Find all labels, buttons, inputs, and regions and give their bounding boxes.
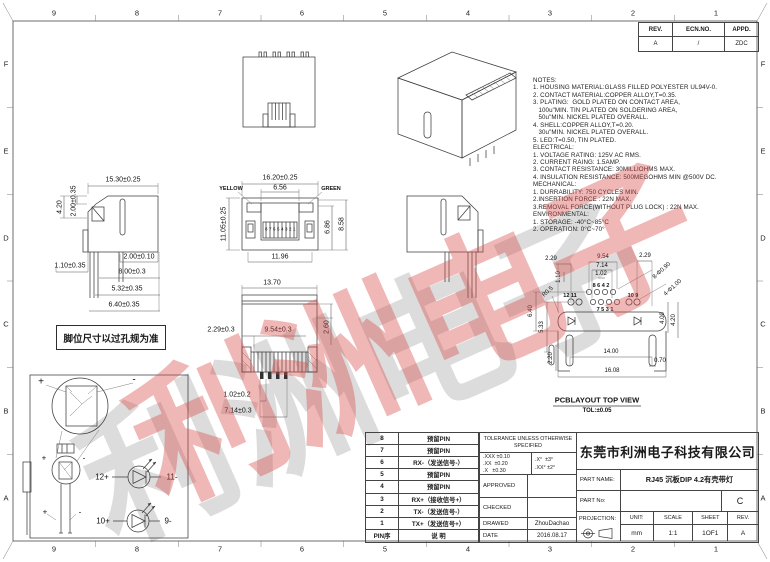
part-no-value (621, 491, 721, 511)
pin-number: 7 (366, 445, 399, 457)
view-isometric (398, 52, 516, 166)
pcb-layout-tolerance: TOL:±0.05 (583, 408, 612, 414)
zone-column-label: 5 (383, 9, 387, 18)
tolerance-block: TOLERANCE UNLESS OTHERWISE SPECIFIED .XX… (479, 433, 576, 542)
zone-row-label: C (3, 320, 8, 329)
dim-label: 4.00 (660, 312, 666, 324)
ecn-value: / (673, 37, 725, 51)
dim-label: 8.58 (339, 217, 346, 231)
rev-value: A (728, 525, 758, 541)
rev-label: REV. (728, 512, 758, 525)
zone-row-label: C (760, 320, 765, 329)
dim-label: 2.20 (548, 352, 554, 364)
dim-label: 2.00±0.35 (71, 185, 78, 216)
zone-column-label: 3 (548, 9, 552, 18)
zone-column-label: 9 (52, 9, 56, 18)
zone-row-label: D (760, 234, 765, 243)
zone-row-label: F (761, 60, 766, 69)
part-name-label: PART NAME: (577, 470, 621, 490)
dim-label: 5.33 (539, 321, 545, 333)
company-name: 东莞市利洲电子科技有限公司 (577, 433, 758, 470)
dim-label: 6.56 (273, 185, 287, 192)
dim-label: 8.00±0.3 (118, 269, 145, 276)
zone-column-label: 9 (52, 545, 56, 554)
zone-column-label: 3 (548, 545, 552, 554)
zone-row-label: E (760, 147, 765, 156)
pin-description-table: 8 预留PIN 7 预留PIN 6 RX-（发送信号-） 5 预留PIN 4 预… (366, 433, 479, 542)
view-top (243, 52, 315, 127)
led-pin-label: 11- (167, 473, 178, 482)
dim-label: 15.30±0.25 (106, 177, 141, 184)
dim-label: 6.40±0.35 (108, 302, 139, 309)
tolerance-title: TOLERANCE UNLESS OTHERWISE SPECIFIED (480, 433, 576, 453)
unit-label: UNIT: (621, 512, 653, 525)
zone-column-label: 8 (135, 545, 139, 554)
dim-label: 9.54 (597, 254, 609, 260)
date-value: 2016.08.17 (528, 530, 576, 542)
title-block-right: 东莞市利洲电子科技有限公司 PART NAME: RJ45 沉板DIP 4.2有… (576, 433, 758, 542)
drawed-label: DRAWED (480, 518, 528, 529)
pin-desc: TX-（发送信号-） (399, 506, 479, 518)
tolerance-angular: .X° ±3° .XX° ±2° (532, 453, 576, 474)
polarity-mark: - (79, 508, 82, 517)
sheet-value: 1OF1 (693, 525, 727, 541)
part-name-value: RJ45 沉板DIP 4.2有壳带灯 (621, 470, 758, 490)
led-pin-label: 12+ (95, 473, 109, 482)
date-label: DATE (480, 530, 528, 542)
dim-label: 11.05±0.25 (221, 207, 228, 241)
unit-value: mm (621, 525, 653, 541)
pcb-pin-numbers: 10 9 (628, 293, 639, 299)
dim-label: 4.20 (57, 200, 64, 214)
projection-icon (577, 525, 620, 541)
dim-label: 13.70 (263, 280, 281, 287)
pin-number: 3 (366, 494, 399, 506)
pin-number: 2 (366, 506, 399, 518)
pin-desc: 预留PIN (399, 433, 479, 445)
zone-column-label: 2 (631, 545, 635, 554)
zone-column-label: 1 (714, 545, 718, 554)
zone-column-label: 6 (300, 9, 304, 18)
polarity-mark: - (132, 375, 135, 386)
pin-desc: 预留PIN (399, 445, 479, 457)
led-pin-label: 10+ (96, 517, 110, 526)
zone-row-label: E (3, 147, 8, 156)
dim-label: 6.40 (528, 305, 534, 317)
dim-label: 16.08 (604, 368, 619, 374)
zone-column-label: 7 (218, 545, 222, 554)
dim-label: 5.32±0.35 (111, 286, 142, 293)
dim-label: 9.54±0.3 (264, 327, 291, 334)
scale-value: 1:1 (654, 525, 693, 541)
pin-number: 8 (366, 433, 399, 445)
pin-number: 6 (366, 457, 399, 469)
pin-number: 1 (366, 518, 399, 530)
tolerance-linear: .XXX ±0.10 .XX ±0.20 .X ±0.30 (480, 453, 532, 474)
zone-column-label: 4 (466, 9, 470, 18)
rev-header: REV. (639, 23, 673, 37)
dim-label: 7.14 (596, 263, 608, 269)
zone-row-label: A (760, 494, 765, 503)
dim-label: 2.60 (324, 320, 331, 334)
zone-column-label: 5 (383, 545, 387, 554)
polarity-mark: + (42, 454, 47, 463)
zone-column-label: 2 (631, 9, 635, 18)
approved-label: APPROVED (480, 475, 528, 497)
pin-number: 5 (366, 469, 399, 481)
dim-label: 4.20 (671, 314, 677, 326)
pin-desc: RX-（发送信号-） (399, 457, 479, 469)
dim-label: 1.10 (556, 271, 562, 283)
dim-label: 2.29 (545, 256, 557, 262)
revision-table: REV. ECN.NO. APPD. A / ZDC (638, 22, 759, 52)
pin-gauge-note: 脚位尺寸以过孔规为准 (56, 325, 166, 350)
pcb-pin-numbers: 8 6 4 2 (593, 283, 610, 289)
pin-numbers: 87654321 (265, 227, 297, 232)
desc-header: 说 明 (399, 530, 479, 542)
pcb-layout-title: PCBLAYOUT TOP VIEW (555, 396, 639, 405)
polarity-mark: - (83, 454, 86, 463)
zone-column-label: 8 (135, 9, 139, 18)
dim-label: 1.02±0.2 (223, 392, 250, 399)
dim-label: 16.20±0.25 (263, 175, 298, 182)
polarity-mark: + (38, 377, 44, 388)
dim-label: 11.96 (272, 254, 289, 261)
pin-desc: 预留PIN (399, 481, 479, 493)
notes-text: NOTES: 1. HOUSING MATERIAL:GLASS FILLED … (533, 77, 717, 234)
zone-row-label: A (3, 494, 8, 503)
zone-row-label: B (3, 407, 8, 416)
dim-label: 6.86 (325, 220, 332, 234)
polarity-mark: + (43, 508, 48, 517)
led-detail-box (23, 375, 188, 538)
led-color-label-yellow: YELLOW (219, 186, 243, 192)
zone-row-label: B (760, 407, 765, 416)
dim-label: 2.29 (639, 253, 651, 259)
scale-label: SCALE (654, 512, 693, 525)
pin-number: 4 (366, 481, 399, 493)
pin-desc: TX+（发送信号+） (399, 518, 479, 530)
dim-label: 14.00 (603, 349, 618, 355)
view-bottom (242, 285, 333, 417)
part-no-label: PART No: (577, 491, 621, 511)
zone-column-label: 1 (714, 9, 718, 18)
led-color-label-green: GREEN (321, 186, 341, 192)
part-rev-letter: C (721, 491, 758, 511)
pin-header: PIN序 (366, 530, 399, 542)
zone-row-label: F (4, 60, 9, 69)
zone-column-label: 7 (218, 9, 222, 18)
dim-label: 1.10±0.35 (54, 263, 85, 270)
approved-value (528, 475, 576, 497)
drawing-sheet: 利洲电子 (0, 0, 770, 562)
pcb-pin-numbers: 12 11 (563, 293, 576, 299)
view-side-right (407, 196, 483, 298)
projection-label: PROJECTION: (577, 512, 620, 525)
appd-value: ZDC (725, 37, 758, 51)
pcb-pin-numbers: 7 5 3 1 (597, 307, 614, 313)
dim-label: 1.02 (595, 271, 607, 277)
zone-column-label: 6 (300, 545, 304, 554)
appd-header: APPD. (725, 23, 758, 37)
drawed-value: ZhouDachao (528, 518, 576, 529)
title-block: 8 预留PIN 7 预留PIN 6 RX-（发送信号-） 5 预留PIN 4 预… (365, 432, 759, 543)
checked-value (528, 498, 576, 517)
pin-desc: RX+（接收信号+） (399, 494, 479, 506)
dim-label: 0.70 (654, 358, 666, 364)
ecn-header: ECN.NO. (673, 23, 725, 37)
pin-desc: 预留PIN (399, 469, 479, 481)
led-pin-label: 9- (164, 517, 171, 526)
rev-value: A (639, 37, 673, 51)
dim-label: 7.14±0.3 (224, 408, 251, 415)
sheet-label: SHEET (693, 512, 727, 525)
zone-column-label: 4 (466, 545, 470, 554)
zone-row-label: D (3, 234, 8, 243)
checked-label: CHECKED (480, 498, 528, 517)
dim-label: 2.29±0.3 (207, 327, 234, 334)
dim-label: 2.00±0.10 (123, 254, 154, 261)
